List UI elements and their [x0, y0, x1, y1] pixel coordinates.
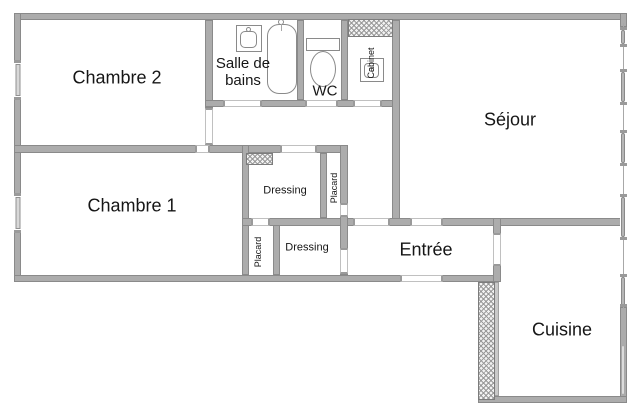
window-tick	[620, 237, 627, 240]
door-placard-bottom	[251, 218, 270, 226]
wall-placard-divider	[273, 225, 280, 275]
door-entree-corridor	[353, 218, 390, 226]
window-sejour-3	[621, 133, 625, 163]
room-label-sejour: Séjour	[484, 110, 536, 131]
window-sejour-1	[621, 30, 625, 44]
room-label-dressing-top: Dressing	[263, 185, 306, 198]
window-tick	[620, 44, 627, 47]
window-strip-line	[623, 23, 624, 309]
room-label-cabinet: Cabinet	[366, 47, 376, 78]
wall-bottom-cuisine	[478, 396, 627, 403]
room-label-entree: Entrée	[399, 240, 452, 261]
door-wc	[305, 100, 338, 107]
window-chambre2	[14, 60, 21, 100]
window-chambre1	[14, 193, 21, 233]
room-label-chambre2: Chambre 2	[72, 68, 161, 89]
window-tick	[620, 102, 627, 105]
washbasin-bowl	[240, 31, 257, 48]
toilet-icon	[306, 38, 340, 51]
window-sejour-2	[621, 72, 625, 102]
window-tick	[620, 130, 627, 133]
wall-sejour-left	[392, 20, 400, 226]
window-tick	[620, 304, 627, 307]
salle-de-bains-line1: Salle de	[216, 55, 270, 72]
door-entrance-front	[400, 275, 443, 282]
room-label-cuisine: Cuisine	[532, 320, 592, 341]
window-pane	[15, 64, 20, 96]
shaft-hatch-cuisine	[478, 282, 495, 400]
room-label-chambre1: Chambre 1	[87, 196, 176, 217]
door-dressing-top	[280, 145, 317, 153]
salle-de-bains-line2: bains	[216, 72, 270, 89]
window-tick	[620, 163, 627, 166]
bathtub-faucet-line	[281, 24, 282, 31]
window-sejour-4	[621, 197, 625, 237]
wall-chambre2-right	[205, 20, 213, 108]
window-tick	[620, 194, 627, 197]
shaft-hatch-dressing	[246, 153, 273, 165]
shaft-hatch-cabinet	[348, 19, 393, 37]
window-cuisine-1	[621, 277, 625, 307]
door-entree-sejour	[410, 218, 443, 226]
wall-dressing-right	[320, 153, 327, 218]
room-label-wc: WC	[313, 82, 338, 99]
door-cabinet	[353, 100, 382, 107]
door-entree-cuisine	[493, 233, 501, 266]
window-pane	[15, 197, 20, 229]
door-salle-de-bains	[223, 100, 262, 107]
wall-sdb-wc-divider	[297, 20, 304, 100]
door-chambre2	[205, 108, 213, 145]
window-tick	[620, 27, 627, 30]
window-tick	[620, 274, 627, 277]
floor-plan: Chambre 2 Salle de bains WC Cabinet Séjo…	[0, 0, 640, 420]
room-label-placard-top: Placard	[329, 173, 339, 204]
washbasin-drain	[246, 27, 251, 32]
door-dressing-bottom	[340, 248, 348, 274]
wall-top	[14, 13, 627, 20]
door-chambre1	[195, 145, 210, 153]
room-label-dressing-bottom: Dressing	[285, 242, 328, 255]
room-label-salle-de-bains: Salle de bains	[216, 55, 270, 90]
window-tick	[620, 69, 627, 72]
bathtub-icon	[267, 24, 297, 94]
wall-wc-cabinet-divider	[341, 20, 348, 100]
window-cuisine-2	[621, 345, 625, 395]
room-label-placard-bottom: Placard	[253, 237, 263, 268]
door-placard-top	[340, 203, 348, 217]
